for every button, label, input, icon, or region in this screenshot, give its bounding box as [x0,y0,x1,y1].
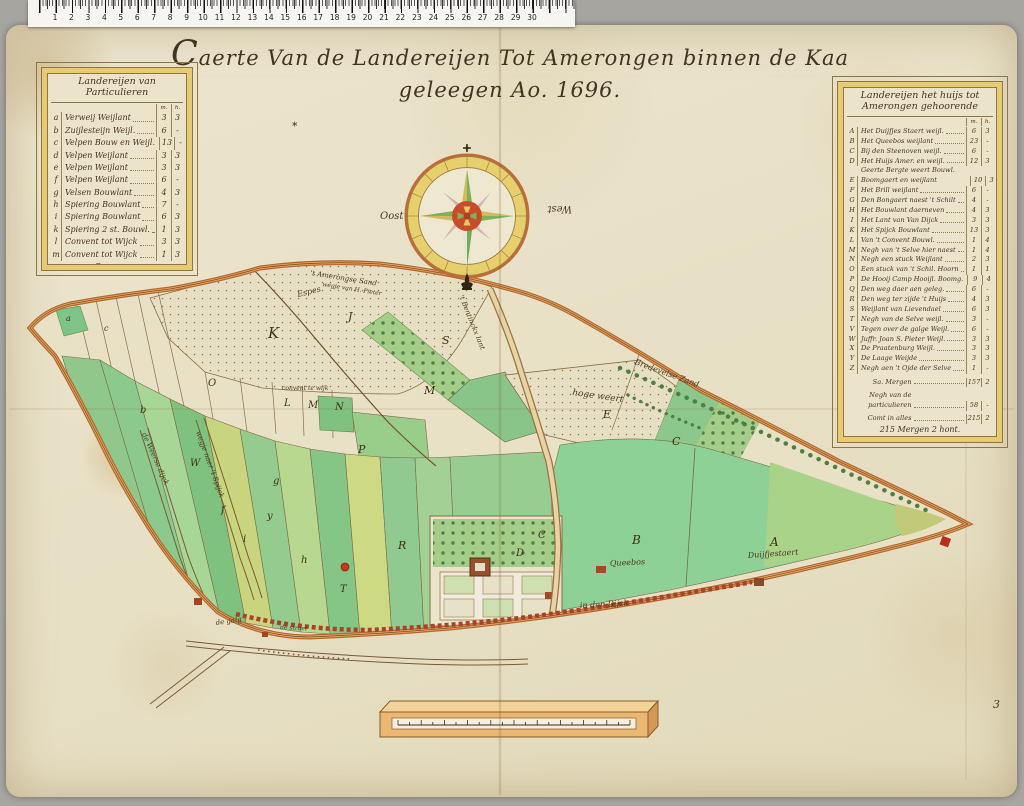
table-row: lConvent tot Wijck33 [51,236,183,248]
table-column-headers: m. h. [847,118,993,127]
table-row: XDe Praatenburg Weijl.33 [847,344,993,354]
table-row: eVelpen Weijlant33 [51,162,183,174]
ruler-number: 23 [412,13,422,22]
table-row: aVerweij Weijlant33 [51,112,183,124]
table-row: mConvent tot Wijck13 [51,249,183,261]
table-row: ZNegh aen 't Ojde der Selve1- [847,364,993,374]
ruler-number: 11 [215,13,225,22]
ruler-number: 4 [102,13,107,22]
legend-table-particulieren: Landereijen van Particulieren m. h. aVer… [36,62,198,276]
ruler-number: 26 [461,13,471,22]
table-row: VTegen over de galge Weijl.6- [847,325,993,335]
table-row: BHet Queebos weijlant23- [847,137,993,147]
parcel-letter: A [769,535,779,549]
parcel-letter: C [672,435,681,448]
table-row: GDen Bongaert naest 't Schilt4- [847,196,993,206]
table-row: MNegh van 't Selve hier naest14 [847,246,993,256]
parcel-letter: D [515,548,524,559]
table-row: RDen weg ter zijde 't Huijs43 [847,295,993,305]
map-scale-bar [380,701,658,737]
house [194,598,202,605]
table-row: HHet Bouwlant daerneven43 [847,206,993,216]
table-title: Landereijen het huijs tot Amerongen geho… [847,90,993,117]
ruler-number: 19 [346,13,356,22]
parcel-letter: c [104,324,109,333]
table-row: NNegh een stuck Weijlant23 [847,255,993,265]
field-roads [150,641,528,708]
parcel-letter: g [273,476,279,487]
parcel-letter: O [208,378,216,389]
parcel-letter: M [423,384,436,397]
compass-top-ornament-icon [463,144,471,152]
ruler-number: 7 [151,13,156,22]
parcel-letter: E [602,408,611,421]
ruler-number: 21 [379,13,389,22]
table-row: iSpiering Bouwlant63 [51,211,183,223]
parcel-letter: S [442,334,450,347]
table-row: OEen stuck van 't Schil. Hoorn11 [847,265,993,275]
ruler-number: 2 [69,13,74,22]
table-row: TNegh van de Selve weijl.3- [847,315,993,325]
parcel-letter: b [140,405,146,416]
table-row: WJuffr. Joan S. Pieter Weijl.33 [847,335,993,345]
ruler-number: 22 [396,13,406,22]
legend-table-huis-amerongen: Landereijen het huijs tot Amerongen geho… [832,76,1008,448]
compass-label-east: Oost [380,211,404,222]
red-mark [940,536,952,548]
ruler-number: 14 [264,13,274,22]
table-footer-row: Sa. Mergen1572 [847,378,993,388]
table-row: QDen weg daer aen geleg.6- [847,285,993,295]
parcel-letter: K [267,324,280,342]
parcel-letter: M [307,400,319,411]
parcel-letter: C [538,530,546,541]
parcel-letter: i [243,534,246,545]
ruler-number: 28 [494,13,504,22]
house [262,632,268,637]
place-name: Queebos [610,557,646,568]
table-row: bZuijlesteijn Weijl.6- [51,125,183,137]
table-row: hSpiering Bouwlant7- [51,199,183,211]
place-name: de straet [280,624,308,632]
parcel-letter: N [334,402,345,413]
table-row: gVelsen Bouwlant43 [51,187,183,199]
table-rows: AHet Duijfjes Staert weijl.63BHet Queebo… [847,127,993,424]
place-name: convent te wijk [282,385,329,392]
ruler-number: 1 [53,13,58,22]
table-row: DHet Huijs Amer. en weijl.123 [847,157,993,167]
ruler-number: 17 [313,13,323,22]
table-row: EGeerte Bergte weert Bouwl. Boomgaert en… [847,166,993,186]
ruler-number: 8 [168,13,173,22]
table-row: cVelpen Bouw en Weijl.13- [51,137,183,149]
table-footer-row: Negh van de particulieren58- [847,391,993,411]
margin-mark: 3 [993,698,1000,711]
ruler-number: 29 [511,13,521,22]
table-row: SWeijlant van Lievendael63 [847,305,993,315]
table-row: PDe Hooij Camp Hooijl. Boomg.94 [847,275,993,285]
table-row: dVelpen Weijlant33 [51,150,183,162]
table-row: KHet Spijck Bouwlant133 [847,226,993,236]
church-building [754,578,764,586]
ruler-number: 15 [281,13,291,22]
ruler-number: 12 [231,13,241,22]
table-rows: aVerweij Weijlant33bZuijlesteijn Weijl.6… [51,112,183,265]
table-footer-row: Sa. Mergen58- [51,261,183,265]
parcel-letter: * [292,120,298,133]
table-column-headers: m. h. [51,104,183,113]
table-row: YDe Laage Weijde33 [847,354,993,364]
parcel-letter: J [346,310,353,323]
ruler-number: 3 [86,13,91,22]
table-footer-row: Comt in alles2152 [847,414,993,424]
parcel-letter: y [266,511,273,522]
parcel-letter: L [283,398,291,409]
ruler-number: 16 [297,13,307,22]
table-total-line: 215 Mergen 2 hont. [847,424,993,434]
compass-label-west: West [546,203,572,214]
ruler-number: 24 [429,13,439,22]
red-seal-mark [341,563,349,571]
ruler-number: 6 [135,13,140,22]
parcel-letter: P [357,443,366,456]
table-row: IHet Lant van Van Dijck33 [847,216,993,226]
map-title: Caerte Van de Landereijen Tot Amerongen … [140,33,880,103]
table-row: LVan 't Convent Bouwl.14 [847,236,993,246]
ruler-number: 9 [184,13,189,22]
ruler: 1234567891011121314151617181920212223242… [28,0,575,27]
parcel-letter: h [301,555,307,566]
table-row: kSpiering 2 st. Bouwl.13 [51,224,183,236]
table-title: Landereijen van Particulieren [51,76,183,103]
parcel-letter: a [66,314,71,323]
table-row: AHet Duijfjes Staert weijl.63 [847,127,993,137]
table-row: CBij den Steenoven weijl.6- [847,147,993,157]
ruler-number: 20 [363,13,373,22]
parcel-letter: R [397,539,406,552]
scanned-map-page: Oost West 3 Espes't Amerongse Sandwegje … [0,0,1024,806]
place-name: in den Dijck [580,598,629,610]
ruler-number: 18 [330,13,340,22]
ruler-number: 13 [248,13,258,22]
parcel-letter: W [190,458,201,469]
ruler-number: 27 [478,13,488,22]
table-row: FHet Brill weijlant6- [847,186,993,196]
table-row: fVelpen Weijlant6- [51,174,183,186]
ruler-number: 30 [527,13,537,22]
ruler-number: 25 [445,13,455,22]
parcel-letter: B [631,533,641,547]
ruler-number: 10 [198,13,208,22]
ruler-number: 5 [118,13,123,22]
